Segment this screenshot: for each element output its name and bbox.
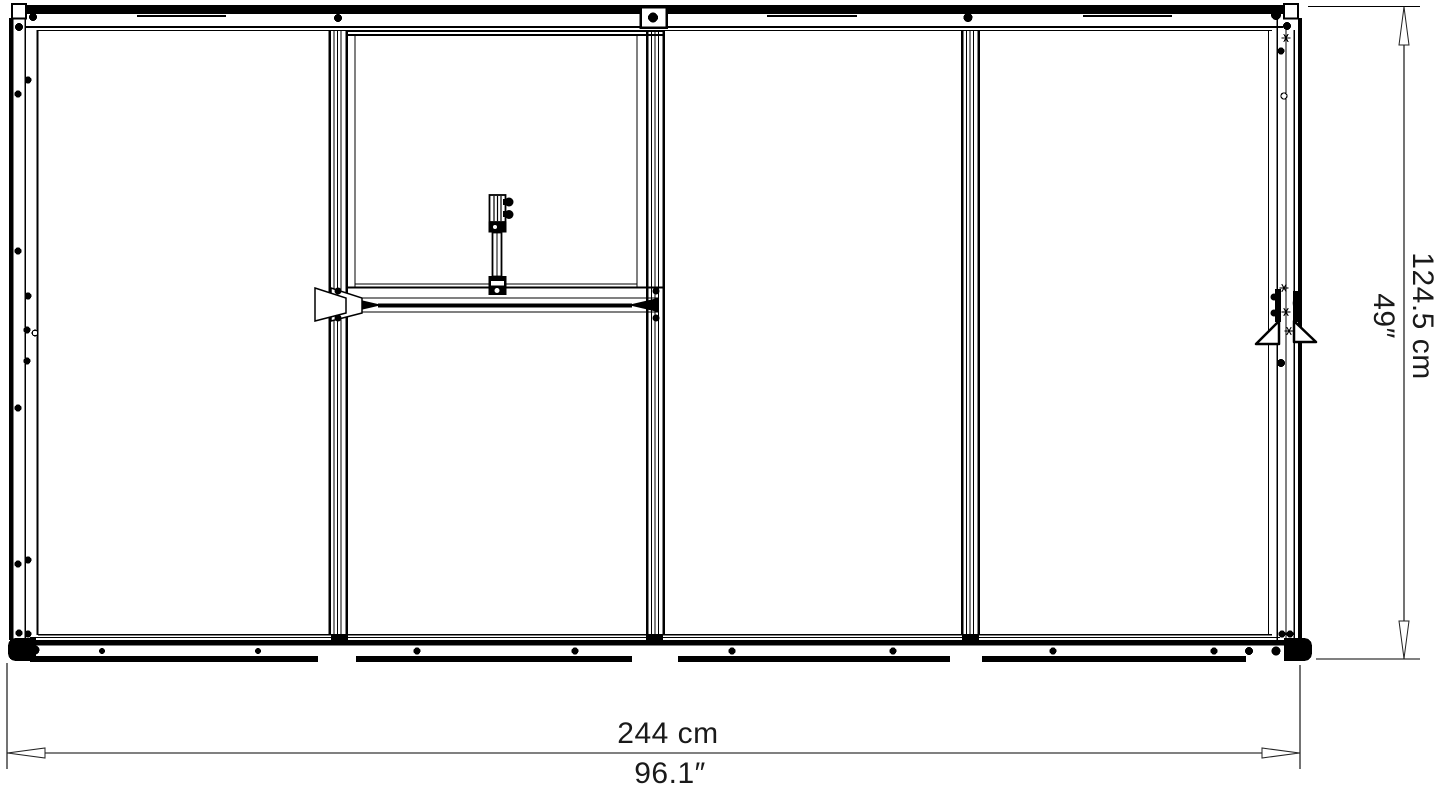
arrow-left bbox=[8, 748, 46, 758]
arrow-down bbox=[1399, 621, 1409, 659]
bottom-rail bbox=[8, 634, 1312, 662]
width-dimension-imperial-label: 96.1″ bbox=[520, 754, 820, 792]
top-rail bbox=[12, 4, 1298, 31]
arrow-right bbox=[1262, 748, 1300, 758]
vent-window bbox=[348, 32, 663, 288]
arrow-up bbox=[1399, 7, 1409, 45]
assembly-drawing bbox=[0, 0, 1440, 792]
diagram-page: 244 cm 96.1″ 124.5 cm 49″ bbox=[0, 0, 1440, 792]
mullion-left bbox=[330, 31, 347, 634]
height-dimension-metric-label: 124.5 cm bbox=[1402, 166, 1440, 466]
left-frame bbox=[9, 18, 38, 640]
mullion-center bbox=[647, 31, 664, 634]
width-dimension-metric-label: 244 cm bbox=[518, 714, 818, 754]
height-dimension-imperial-label: 49″ bbox=[1363, 166, 1403, 466]
window-sill-rail bbox=[315, 288, 660, 322]
mullion-right bbox=[962, 31, 979, 634]
window-opener-latch bbox=[489, 195, 514, 295]
